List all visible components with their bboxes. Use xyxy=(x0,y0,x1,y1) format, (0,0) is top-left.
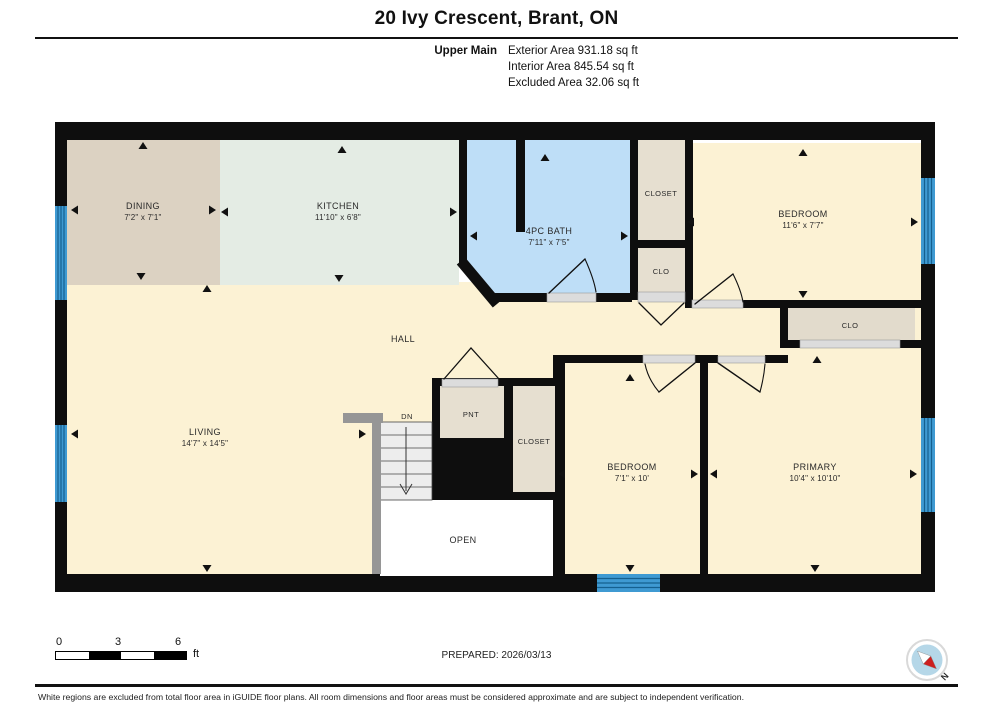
window-bottom-bedroom xyxy=(597,574,660,592)
exterior-area: Exterior Area 931.18 sq ft xyxy=(508,45,639,57)
interior-area: Interior Area 845.54 sq ft xyxy=(508,61,639,73)
label-clo-hall: CLO xyxy=(653,267,670,276)
scale-tick-3: 3 xyxy=(115,636,121,648)
label-open: OPEN xyxy=(449,535,476,545)
label-bath-dims: 7'11" x 7'5" xyxy=(528,238,569,247)
page-title: 20 Ivy Crescent, Brant, ON xyxy=(0,8,993,30)
window-left-living xyxy=(55,425,67,502)
label-pantry: PNT xyxy=(463,410,479,419)
door-clo-primary-sliding xyxy=(800,340,900,348)
label-living-dims: 14'7" x 14'5" xyxy=(182,439,228,448)
label-bedroom-tr: BEDROOM xyxy=(778,209,827,219)
label-bath: 4PC BATH xyxy=(526,226,573,236)
floor-info: Upper Main Exterior Area 931.18 sq ft In… xyxy=(0,45,993,93)
area-summary: Exterior Area 931.18 sq ft Interior Area… xyxy=(497,45,639,93)
prepared-date: PREPARED: 2026/03/13 xyxy=(0,650,993,661)
label-closet-mid: CLOSET xyxy=(518,437,550,446)
room-dining-fill xyxy=(67,138,220,285)
label-hall: HALL xyxy=(391,334,415,344)
floor-plan: DINING 7'2" x 7'1" KITCHEN 11'10" x 6'8"… xyxy=(55,122,935,592)
label-bedroom-tr-dims: 11'6" x 7'7" xyxy=(782,221,823,230)
footer-divider xyxy=(35,684,958,687)
floor-label: Upper Main xyxy=(0,45,497,93)
floor-plan-svg: DINING 7'2" x 7'1" KITCHEN 11'10" x 6'8"… xyxy=(55,122,935,592)
label-kitchen-dims: 11'10" x 6'8" xyxy=(315,213,361,222)
footer-disclaimer: White regions are excluded from total fl… xyxy=(38,692,973,702)
label-closet-top: CLOSET xyxy=(645,189,677,198)
label-stairs-dn: DN xyxy=(401,412,413,421)
label-bedroom-mid-dims: 7'1" x 10' xyxy=(615,474,649,483)
stair-railing xyxy=(343,413,383,423)
excluded-area: Excluded Area 32.06 sq ft xyxy=(508,77,639,89)
label-dining-dims: 7'2" x 7'1" xyxy=(124,213,161,222)
label-bedroom-mid: BEDROOM xyxy=(607,462,656,472)
scale-tick-0: 0 xyxy=(56,636,62,648)
window-left-dining xyxy=(55,206,67,300)
header-divider xyxy=(35,37,958,39)
window-right-bedroom xyxy=(921,178,935,264)
label-primary: PRIMARY xyxy=(793,462,837,472)
window-right-primary xyxy=(921,418,935,512)
label-clo-primary: CLO xyxy=(842,321,859,330)
stair-railing xyxy=(372,423,381,574)
room-bath-fill xyxy=(465,138,632,297)
scale-tick-6: 6 xyxy=(175,636,181,648)
compass-svg: N xyxy=(895,630,959,690)
label-kitchen: KITCHEN xyxy=(317,201,359,211)
label-living: LIVING xyxy=(189,427,221,437)
label-dining: DINING xyxy=(126,201,160,211)
label-primary-dims: 10'4" x 10'10" xyxy=(789,474,840,483)
